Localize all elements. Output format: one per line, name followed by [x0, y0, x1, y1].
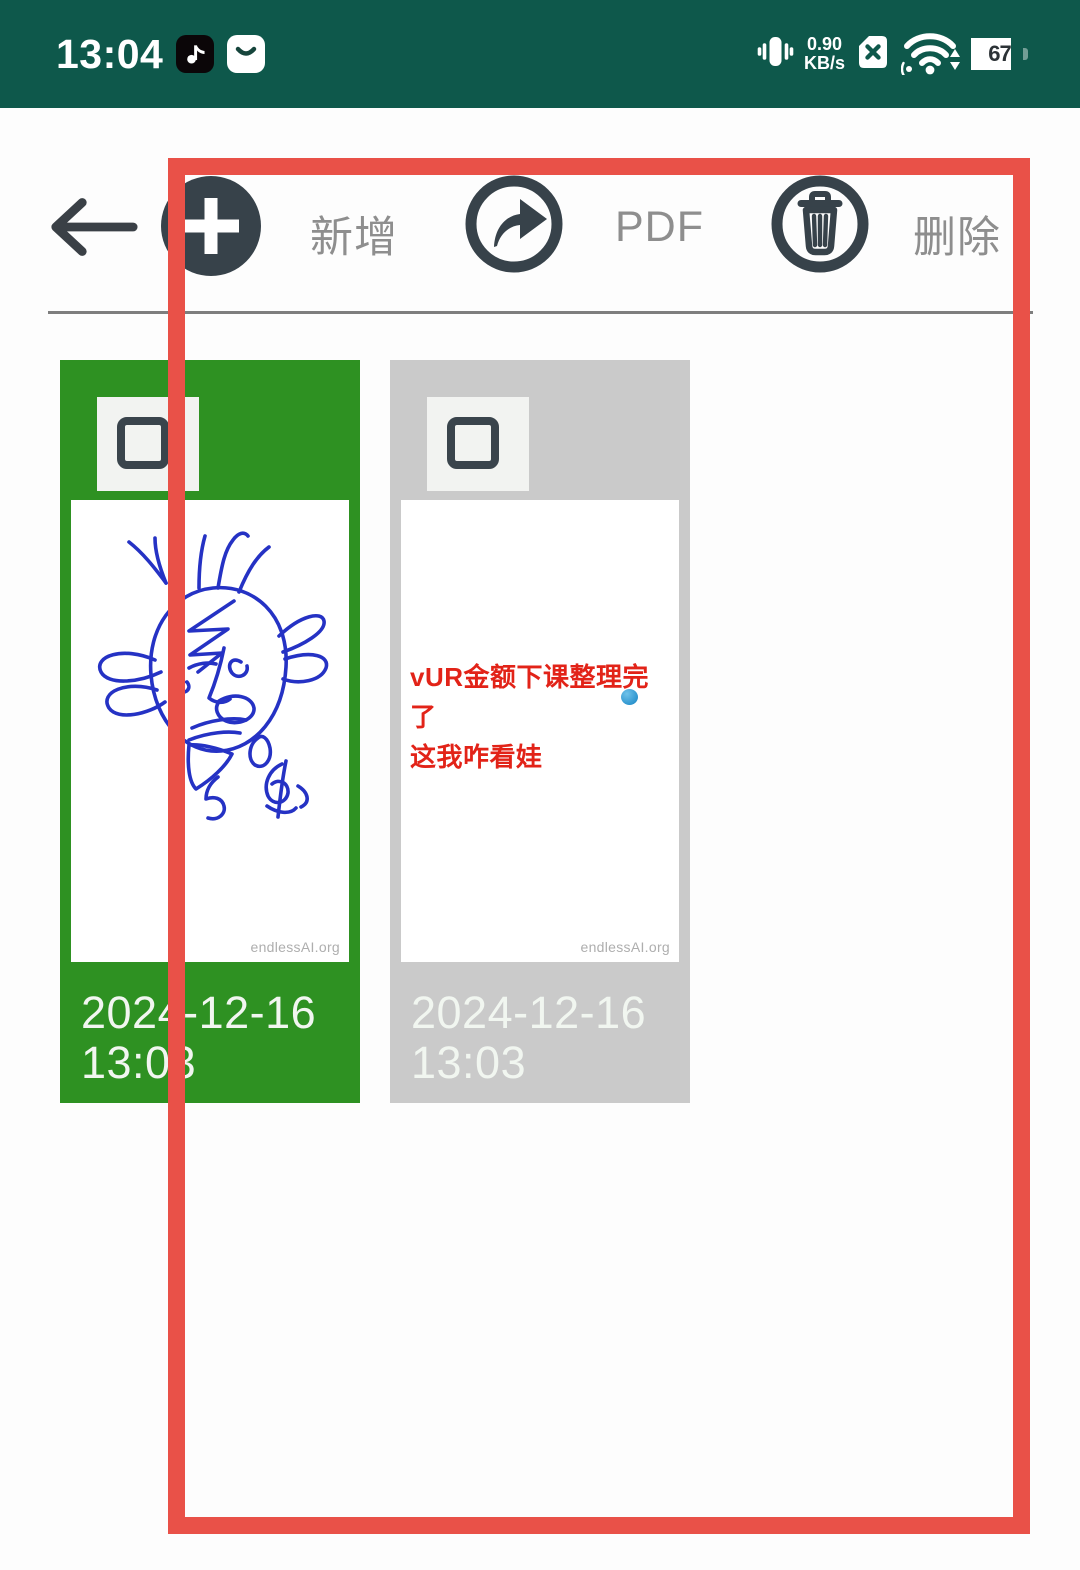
trash-icon — [770, 174, 870, 274]
battery-indicator: 67 — [971, 38, 1028, 70]
network-speed-unit: KB/s — [804, 54, 845, 73]
tiktok-notification-icon — [176, 35, 214, 73]
share-icon — [464, 174, 564, 274]
select-checkbox-1[interactable] — [97, 397, 199, 491]
time-line: 13:03 — [411, 1038, 646, 1088]
wifi-icon — [901, 29, 961, 80]
note-line-2: 这我咋看娃 — [410, 737, 650, 777]
shop-notification-icon — [227, 35, 265, 73]
network-speed-value: 0.90 — [807, 35, 842, 54]
status-bar: 13:04 0.90 — [0, 0, 1080, 108]
status-left-cluster: 13:04 — [56, 0, 265, 108]
back-button[interactable] — [46, 195, 140, 259]
back-arrow-icon — [46, 195, 140, 259]
document-thumbnail-1[interactable]: endlessAI.org — [71, 500, 349, 962]
document-date-2: 2024-12-16 13:03 — [411, 988, 646, 1088]
watermark-text: endlessAI.org — [250, 939, 340, 955]
document-thumbnail-2[interactable]: vUR金额下课整理完了 这我咋看娃 endlessAI.org — [401, 500, 679, 962]
delete-label: 删除 — [913, 203, 1001, 265]
toolbar-divider — [48, 311, 1033, 314]
note-text: vUR金额下课整理完了 这我咋看娃 — [410, 657, 650, 777]
watermark-text: endlessAI.org — [580, 939, 670, 955]
share-pdf-button[interactable] — [464, 174, 564, 274]
add-label: 新增 — [310, 203, 398, 265]
time-line: 13:03 — [81, 1038, 316, 1088]
note-line-1: vUR金额下课整理完了 — [410, 657, 650, 737]
pdf-label: PDF — [615, 203, 704, 252]
delete-button[interactable] — [770, 174, 870, 274]
status-right-cluster: 0.90 KB/s — [757, 0, 1028, 108]
app-screen: 13:04 0.90 — [0, 0, 1080, 1570]
plus-icon — [161, 176, 261, 276]
no-sim-icon — [855, 33, 891, 76]
toolbar: 新增 PDF 删除 — [0, 108, 1080, 313]
checkbox-box-icon — [447, 417, 499, 469]
add-button[interactable] — [161, 176, 261, 276]
date-line: 2024-12-16 — [411, 988, 646, 1038]
status-time: 13:04 — [56, 31, 163, 78]
vibrate-icon — [757, 32, 794, 77]
document-grid: endlessAI.org 2024-12-16 13:03 vUR金额下课整理… — [60, 360, 690, 1103]
doodle-drawing — [71, 500, 349, 962]
date-line: 2024-12-16 — [81, 988, 316, 1038]
document-card-1[interactable]: endlessAI.org 2024-12-16 13:03 — [60, 360, 360, 1103]
network-speed: 0.90 KB/s — [804, 35, 845, 73]
document-date-1: 2024-12-16 13:03 — [81, 988, 316, 1088]
checkbox-box-icon — [117, 417, 169, 469]
blue-dot-sticker — [621, 689, 638, 705]
select-checkbox-2[interactable] — [427, 397, 529, 491]
battery-percent: 67 — [971, 38, 1028, 70]
document-card-2[interactable]: vUR金额下课整理完了 这我咋看娃 endlessAI.org 2024-12-… — [390, 360, 690, 1103]
